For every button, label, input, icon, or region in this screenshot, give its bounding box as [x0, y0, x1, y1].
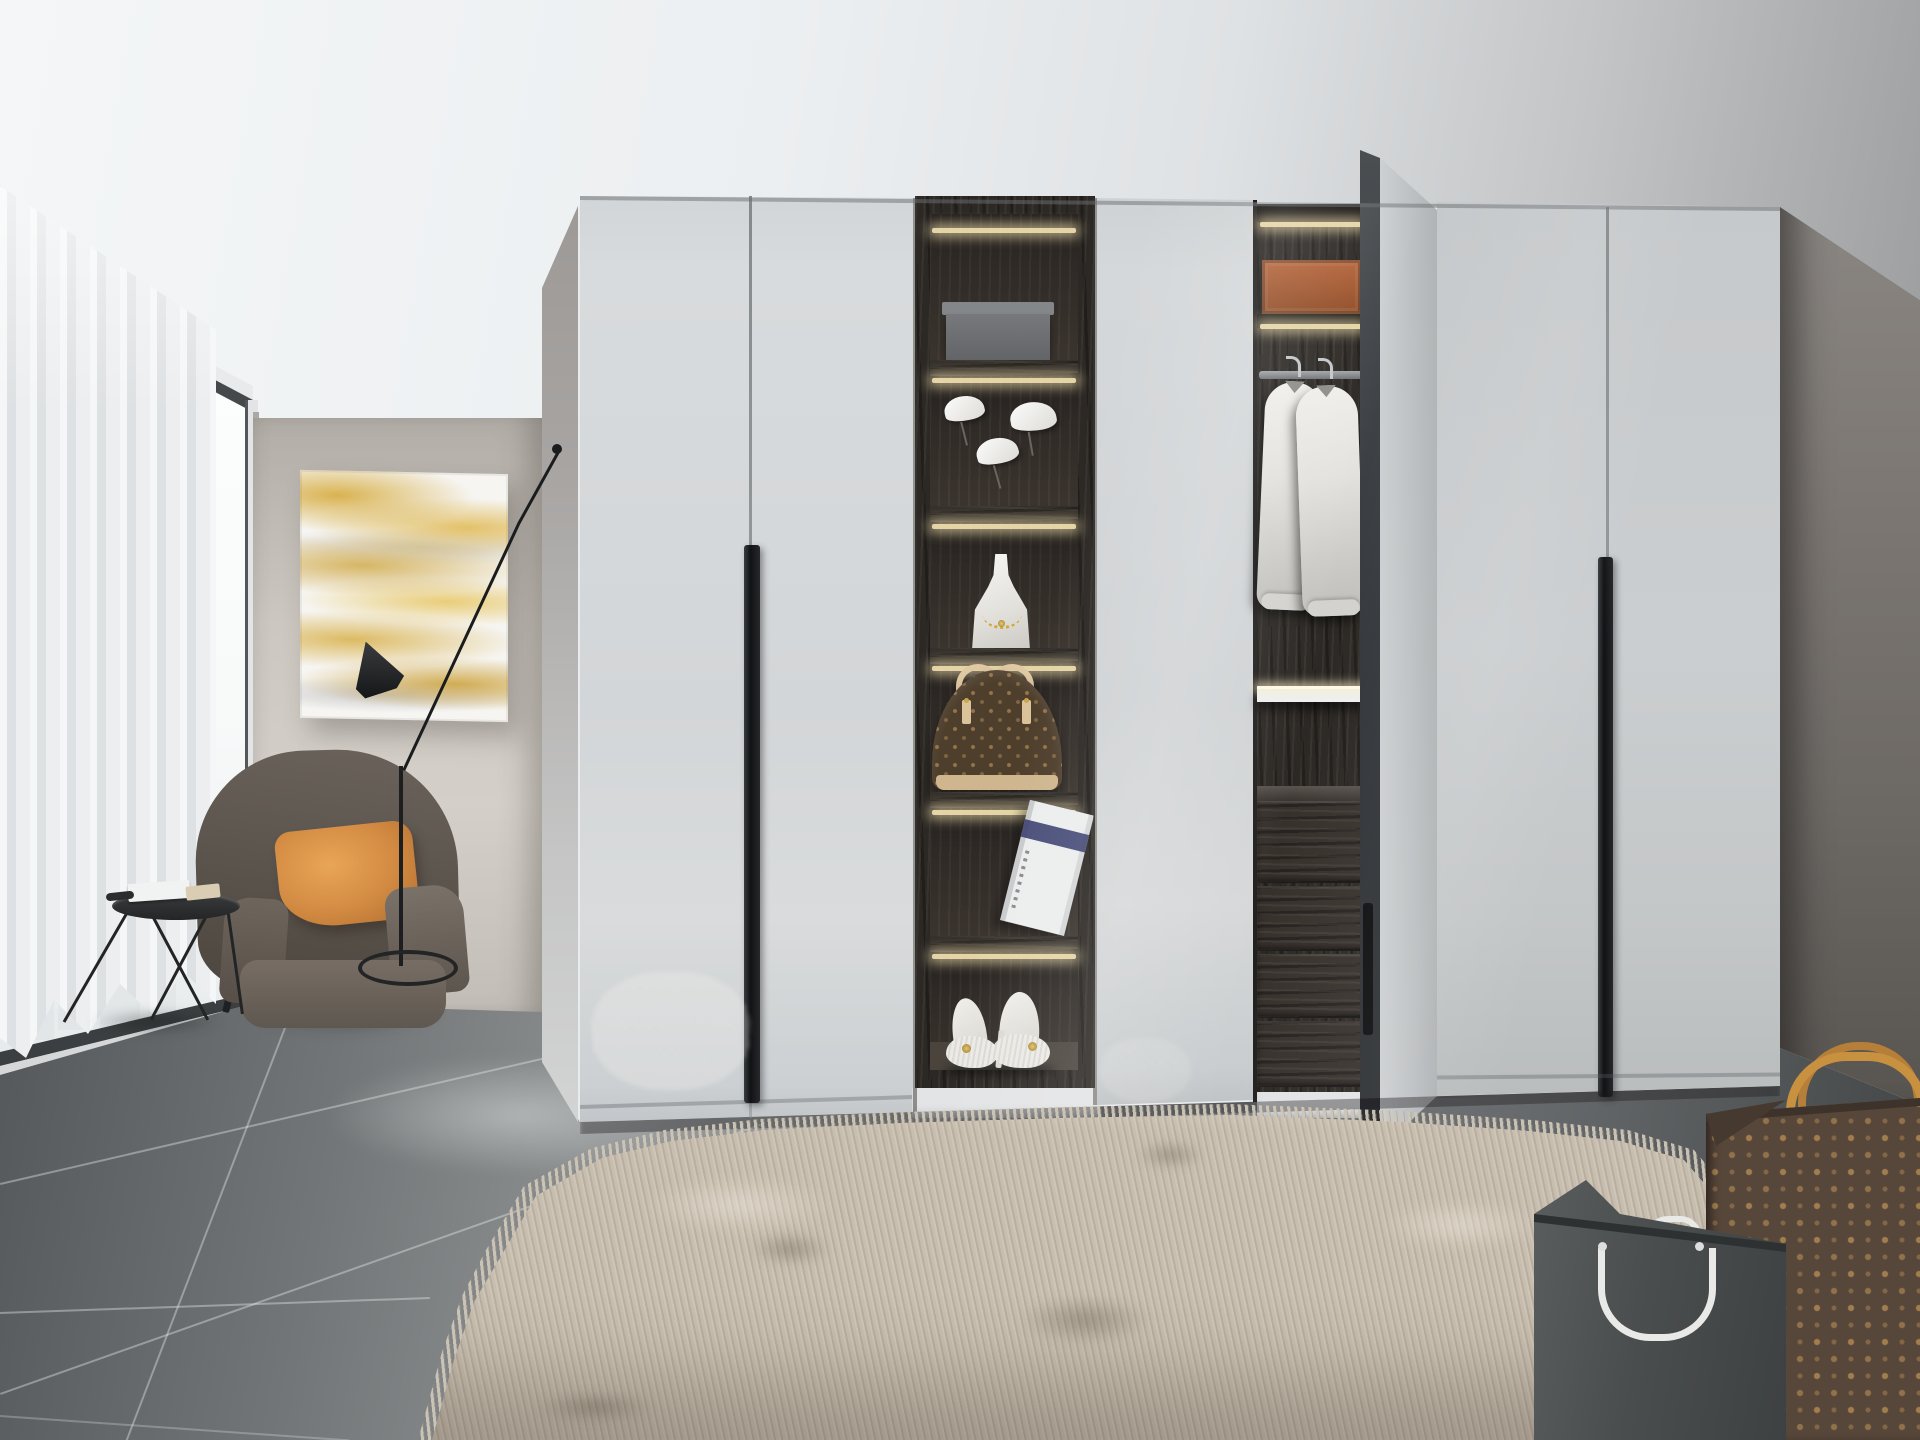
shoe-ornament — [962, 1044, 971, 1053]
grout-line — [0, 1297, 430, 1314]
lamp-base-ring — [358, 950, 458, 986]
shelf-divider — [930, 936, 1078, 952]
recess-edge — [1093, 198, 1097, 1105]
necklace-pendant — [998, 620, 1005, 627]
rug-shadow-patch — [990, 1285, 1180, 1355]
interior-shelf — [1257, 786, 1366, 801]
drawer — [1257, 1021, 1366, 1087]
interior-led-strip — [1260, 222, 1363, 227]
grout-line — [0, 1415, 349, 1440]
shelf-divider — [930, 648, 1078, 664]
rug-reflection — [592, 972, 750, 1090]
leather-storage-box — [1262, 260, 1361, 314]
wardrobe-handle-right — [1598, 557, 1613, 1097]
recess-edge — [913, 198, 917, 1112]
handbag-leather-tab — [1022, 700, 1031, 724]
drawer — [1257, 954, 1366, 1018]
shoe-toe — [946, 1036, 998, 1068]
handbag-leather-tab — [962, 700, 971, 724]
shelf-led-strip — [932, 228, 1076, 233]
rope-knot — [1695, 1242, 1704, 1251]
hanging-shirt — [1295, 385, 1365, 617]
shoe-toe — [992, 1034, 1050, 1068]
rug-shadow-patch — [1120, 1135, 1220, 1175]
drawer — [1257, 801, 1366, 883]
rope-knot — [1598, 1242, 1607, 1251]
wardrobe-door-middle — [1097, 198, 1255, 1105]
hanger-hook — [1286, 356, 1301, 377]
rug-shadow-patch — [730, 1225, 850, 1273]
storage-box — [946, 314, 1050, 360]
sheer-curtain — [0, 180, 220, 1070]
open-door-face — [1380, 158, 1437, 1150]
bedroom-wardrobe-render — [0, 0, 1920, 1440]
drawer — [1257, 886, 1366, 951]
book-band — [1021, 819, 1090, 853]
rope-handle — [1598, 1248, 1716, 1341]
shelf-led-strip — [932, 378, 1076, 383]
shelf-led-strip — [932, 524, 1076, 529]
shelf-divider — [930, 360, 1078, 376]
lamp-pole — [399, 766, 403, 966]
shelf-led-strip — [932, 954, 1076, 959]
rug-reflection — [1100, 1038, 1190, 1102]
hanger-hook — [1318, 358, 1333, 379]
rug-shadow-patch — [510, 1385, 680, 1429]
shelf-divider — [930, 506, 1078, 522]
wardrobe-handle-open-door — [1363, 903, 1373, 1035]
interior-white-shelf — [1257, 686, 1366, 702]
wall-art-gold-marble — [300, 470, 508, 722]
handbag-buckle — [964, 698, 969, 703]
right-wall — [1780, 200, 1920, 1110]
hanging-rod — [1259, 371, 1364, 379]
wardrobe-side-panel — [540, 200, 580, 1130]
shoe-ornament — [1028, 1042, 1037, 1051]
handbag-buckle — [1024, 698, 1029, 703]
interior-led-strip — [1260, 324, 1363, 329]
